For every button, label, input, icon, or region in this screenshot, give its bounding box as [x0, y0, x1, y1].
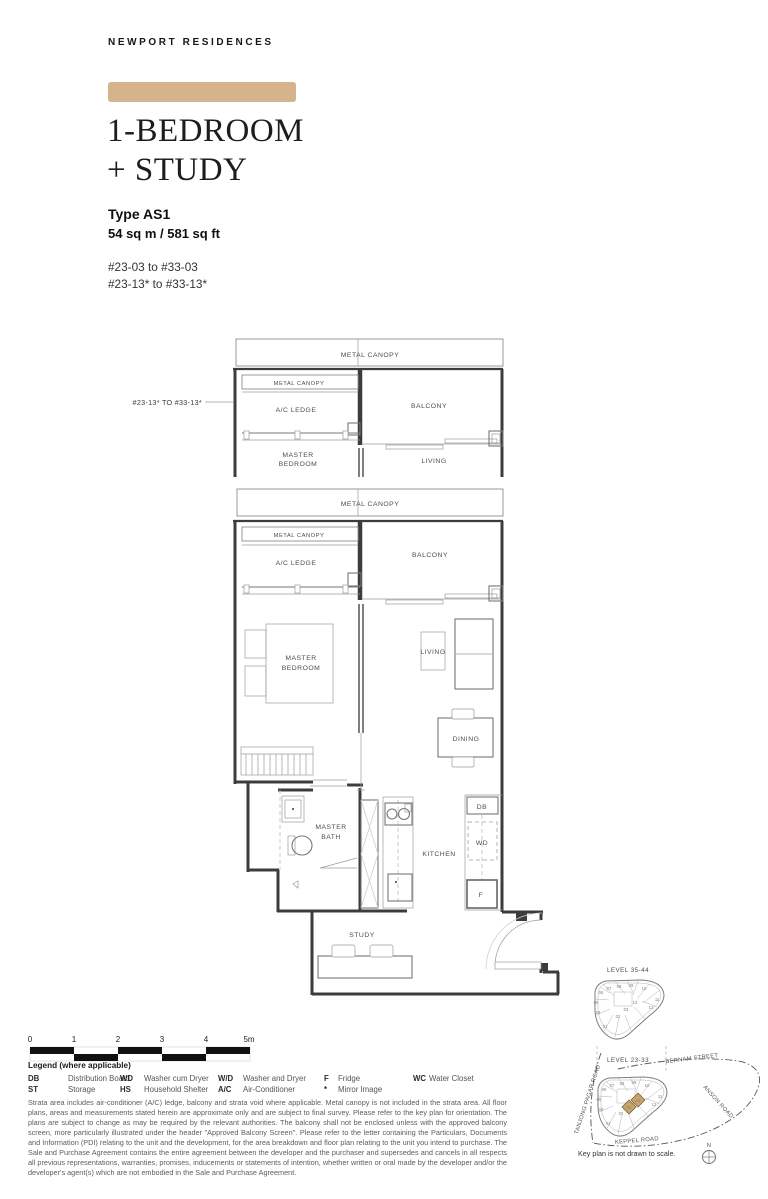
svg-text:06: 06: [602, 1087, 607, 1092]
street-keppel: KEPPEL ROAD: [615, 1136, 659, 1146]
scale-tick-4: 4: [204, 1035, 209, 1044]
stack-callout: #23-13* TO #33-13*: [133, 398, 233, 407]
room-label-master-bath-2: BATH: [321, 834, 341, 841]
svg-text:01: 01: [603, 1024, 608, 1029]
svg-text:11: 11: [658, 1094, 663, 1099]
partial-plan: METAL CANOPY METAL CANOPY A/C LEDGE MAST…: [233, 339, 503, 477]
room-label-master-bedroom-1: MASTER: [285, 655, 316, 662]
legend-header: Legend (where applicable): [28, 1061, 488, 1070]
svg-text:08: 08: [617, 984, 622, 989]
svg-text:05: 05: [597, 1097, 602, 1102]
svg-text:09: 09: [629, 983, 634, 988]
street-bernam: BERNAM STREET: [665, 1053, 719, 1065]
room-label-balcony: BALCONY: [412, 552, 448, 559]
key-plan-upper-level: LEVEL 35-44: [607, 967, 649, 974]
room-label-master-bedroom-2: BEDROOM: [282, 665, 321, 672]
svg-text:06: 06: [599, 990, 604, 995]
disclaimer-text: Strata area includes air-conditioner (A/…: [28, 1098, 507, 1178]
legend-col-3: W/DWasher and Dryer A/CAir-Conditioner: [218, 1073, 306, 1095]
room-label-metal-canopy: METAL CANOPY: [341, 501, 400, 508]
key-plan-note: Key plan is not drawn to scale.: [578, 1149, 675, 1158]
svg-text:07: 07: [607, 986, 612, 991]
key-plan-lower-level: LEVEL 23-33: [607, 1057, 649, 1064]
svg-text:09: 09: [632, 1080, 637, 1085]
stack-callout-label: #23-13* TO #33-13*: [133, 398, 202, 407]
svg-text:04: 04: [596, 1010, 601, 1015]
svg-text:04: 04: [599, 1107, 604, 1112]
room-label-master-bath-1: MASTER: [315, 824, 346, 831]
room-label-master-bedroom-1: MASTER: [282, 452, 313, 459]
svg-text:10: 10: [645, 1083, 650, 1088]
room-label-dining: DINING: [453, 736, 480, 743]
svg-text:13: 13: [633, 1000, 638, 1005]
wardrobe-hatch: [246, 754, 306, 775]
room-label-living: LIVING: [420, 649, 445, 656]
scale-bar: 0 1 2 3 4 5m: [28, 1035, 255, 1061]
legend-col-2: WDWasher cum Dryer HSHousehold Shelter: [120, 1073, 209, 1095]
floor-plan-canvas: METAL CANOPY METAL CANOPY A/C LEDGE MAST…: [0, 0, 768, 1199]
svg-text:N: N: [707, 1143, 712, 1149]
room-label-metal-canopy-inner: METAL CANOPY: [274, 381, 325, 387]
svg-text:12: 12: [649, 1005, 654, 1010]
room-label-kitchen: KITCHEN: [422, 851, 455, 858]
room-label-living: LIVING: [421, 458, 446, 465]
scale-tick-1: 1: [72, 1035, 77, 1044]
street-anson: ANSON ROAD: [701, 1085, 734, 1120]
label-f: F: [479, 892, 484, 899]
room-label-metal-canopy: METAL CANOPY: [341, 352, 400, 359]
key-plan: LEVEL 35-44 01 02 03 04 05 06 07 08 09 1…: [574, 967, 760, 1164]
scale-tick-0: 0: [28, 1035, 33, 1044]
svg-text:05: 05: [594, 1000, 599, 1005]
room-label-ac-ledge: A/C LEDGE: [276, 560, 317, 567]
scale-tick-2: 2: [116, 1035, 121, 1044]
svg-text:07: 07: [610, 1083, 615, 1088]
svg-text:03: 03: [624, 1007, 629, 1012]
room-label-ac-ledge: A/C LEDGE: [276, 407, 317, 414]
label-db: DB: [477, 804, 487, 811]
scale-tick-5: 5m: [243, 1035, 254, 1044]
scale-tick-3: 3: [160, 1035, 165, 1044]
room-label-balcony: BALCONY: [411, 403, 447, 410]
room-label-study: STUDY: [349, 932, 375, 939]
svg-text:03: 03: [627, 1105, 632, 1110]
svg-text:11: 11: [655, 997, 660, 1002]
svg-text:13: 13: [636, 1098, 641, 1103]
main-plan: METAL CANOPY METAL CANOPY A/C LEDGE: [233, 489, 559, 995]
room-label-master-bedroom-2: BEDROOM: [279, 461, 318, 468]
legend: Legend (where applicable) DBDistribution…: [28, 1061, 488, 1095]
north-arrow-icon: N: [703, 1143, 716, 1164]
svg-text:12: 12: [652, 1102, 657, 1107]
legend-col-1: DBDistribution Board STStorage: [28, 1073, 130, 1095]
label-wd: WD: [476, 840, 488, 847]
svg-text:02: 02: [619, 1111, 624, 1116]
svg-text:02: 02: [616, 1014, 621, 1019]
room-label-metal-canopy-inner: METAL CANOPY: [274, 533, 325, 539]
svg-text:01: 01: [606, 1121, 611, 1126]
svg-text:10: 10: [642, 986, 647, 991]
legend-col-4: FFridge *Mirror Image: [324, 1073, 382, 1095]
legend-col-5: WCWater Closet: [413, 1073, 474, 1084]
svg-text:08: 08: [620, 1081, 625, 1086]
